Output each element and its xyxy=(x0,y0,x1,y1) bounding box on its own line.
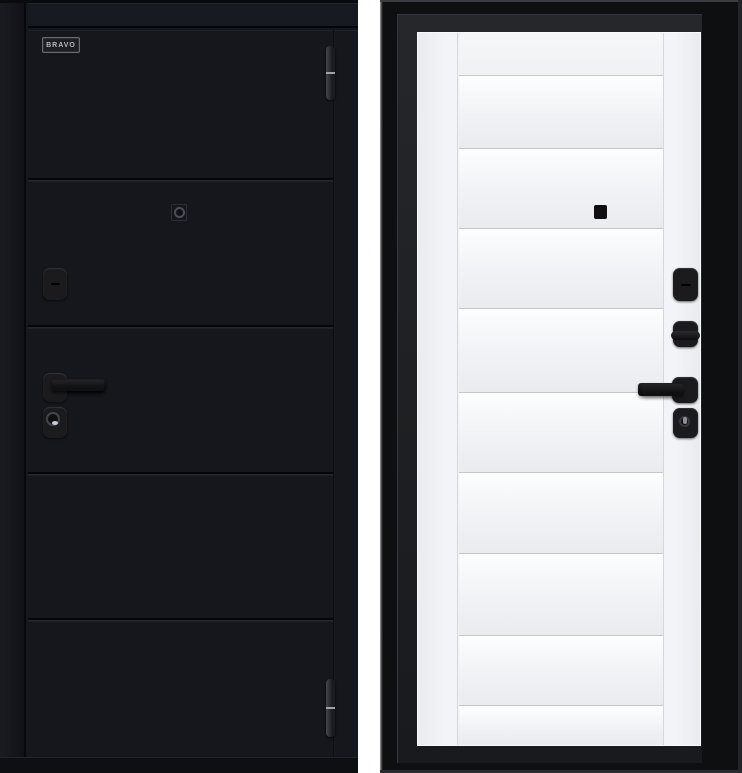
thumbturn-knob xyxy=(671,331,700,340)
interior-deadbolt-cover xyxy=(673,268,698,301)
peephole-lens xyxy=(174,207,185,218)
frame-top-edge xyxy=(380,0,742,2)
door-product-photo: BRAVO xyxy=(0,0,742,773)
left-door-top-rail xyxy=(28,3,358,28)
deadbolt-slot xyxy=(681,284,691,286)
peephole-cover-icon xyxy=(594,205,607,219)
interior-cylinder-escutcheon xyxy=(673,408,698,438)
panel-row xyxy=(459,392,663,472)
frame-left-edge xyxy=(380,0,383,773)
left-door-hinge-stile-line xyxy=(333,30,335,757)
left-door-groove xyxy=(28,178,334,182)
leaf-left-stile xyxy=(418,33,458,745)
hinge-seam xyxy=(326,707,335,709)
panel-bottom-cap xyxy=(459,705,663,745)
exterior-cylinder-escutcheon xyxy=(43,407,67,438)
left-door-groove xyxy=(28,618,334,622)
keyhole-cap xyxy=(52,421,58,425)
brand-logo-text: BRAVO xyxy=(46,42,76,49)
background-gap xyxy=(358,0,380,773)
deadbolt-slot xyxy=(51,283,60,285)
left-door-groove xyxy=(28,325,334,329)
hinge-top xyxy=(326,46,335,100)
brand-logo-plate: BRAVO xyxy=(42,37,80,53)
left-door-bottom-edge xyxy=(0,757,358,773)
panel-row xyxy=(459,308,663,392)
panel-row xyxy=(459,635,663,705)
hinge-seam xyxy=(326,72,335,74)
left-door-groove xyxy=(28,472,334,476)
panel-row xyxy=(459,148,663,228)
exterior-lever-bar xyxy=(52,380,104,391)
black-door-exterior: BRAVO xyxy=(0,0,358,773)
interior-lever-grip xyxy=(642,384,684,396)
peephole-icon xyxy=(171,204,187,221)
panel-row xyxy=(459,228,663,308)
white-door-interior xyxy=(380,0,742,773)
exterior-deadbolt-cover xyxy=(43,268,67,300)
leaf-panel-column xyxy=(459,33,663,745)
panel-row xyxy=(459,75,663,148)
panel-row xyxy=(459,472,663,553)
left-door-leaf xyxy=(28,30,358,757)
hinge-bottom xyxy=(326,679,335,737)
left-door-frame-strip xyxy=(0,3,26,773)
panel-row xyxy=(459,553,663,635)
keyhole-cap xyxy=(683,417,687,424)
panel-top-cap xyxy=(459,33,663,75)
frame-right-edge xyxy=(738,0,742,773)
left-door-top-edge xyxy=(0,0,358,3)
